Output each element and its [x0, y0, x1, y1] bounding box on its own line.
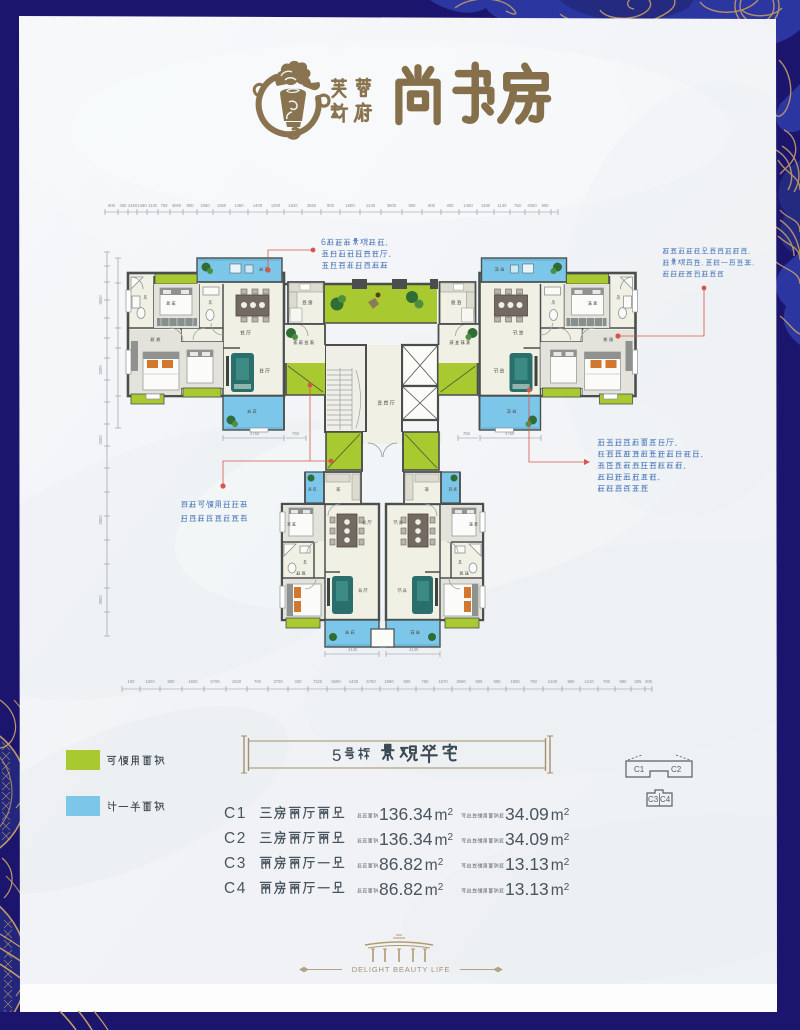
svg-text:4050: 4050 — [527, 203, 537, 208]
svg-text:900: 900 — [542, 203, 550, 208]
svg-text:86.82m2: 86.82m2 — [379, 854, 444, 874]
svg-text:3690: 3690 — [456, 679, 466, 684]
svg-text:1900: 1900 — [510, 679, 520, 684]
svg-text:900: 900 — [187, 203, 195, 208]
svg-text:805: 805 — [494, 679, 502, 684]
svg-text:1360: 1360 — [217, 203, 227, 208]
svg-text:C1: C1 — [224, 805, 247, 822]
svg-text:4130: 4130 — [348, 647, 358, 652]
svg-text:1300: 1300 — [271, 203, 281, 208]
svg-text:1430: 1430 — [349, 679, 359, 684]
svg-text:900: 900 — [404, 679, 412, 684]
svg-text:C1: C1 — [634, 765, 645, 774]
svg-text:7320: 7320 — [313, 679, 323, 684]
svg-text:1600: 1600 — [345, 203, 355, 208]
svg-text:1130: 1130 — [497, 203, 507, 208]
svg-text:136.34m2: 136.34m2 — [379, 829, 453, 849]
svg-text:4750: 4750 — [505, 431, 515, 436]
svg-text:2100: 2100 — [548, 679, 558, 684]
svg-text:136.34m2: 136.34m2 — [379, 804, 453, 824]
svg-text:100: 100 — [128, 679, 136, 684]
svg-text:C2: C2 — [671, 765, 682, 774]
svg-text:1570: 1570 — [438, 679, 448, 684]
svg-text:330: 330 — [295, 679, 303, 684]
svg-text:3600: 3600 — [98, 295, 103, 305]
svg-text:3700: 3700 — [273, 679, 283, 684]
svg-text:34.09m2: 34.09m2 — [505, 804, 570, 824]
svg-text:700: 700 — [603, 679, 611, 684]
svg-text:300: 300 — [645, 679, 653, 684]
svg-text:4130: 4130 — [409, 647, 419, 652]
svg-text:C3: C3 — [224, 855, 247, 872]
svg-text:DELIGHT BEAUTY LIFE: DELIGHT BEAUTY LIFE — [352, 965, 450, 974]
svg-text:400: 400 — [120, 203, 128, 208]
svg-text:4050: 4050 — [172, 203, 182, 208]
svg-text:400: 400 — [447, 203, 455, 208]
svg-text:905: 905 — [476, 679, 484, 684]
svg-text:13.13m2: 13.13m2 — [505, 879, 570, 899]
svg-text:1480: 1480 — [137, 203, 147, 208]
svg-text:86.82m2: 86.82m2 — [379, 879, 444, 899]
svg-text:1130: 1130 — [148, 203, 158, 208]
svg-text:1430: 1430 — [366, 203, 376, 208]
svg-text:4800: 4800 — [98, 515, 103, 525]
svg-text:750: 750 — [422, 679, 430, 684]
svg-text:5: 5 — [332, 746, 341, 765]
svg-text:900: 900 — [168, 679, 176, 684]
svg-text:1820: 1820 — [145, 679, 155, 684]
svg-text:760: 760 — [530, 679, 538, 684]
svg-text:5705: 5705 — [210, 679, 220, 684]
svg-text:700: 700 — [254, 679, 262, 684]
svg-text:1210: 1210 — [584, 679, 594, 684]
svg-text:C4: C4 — [660, 795, 671, 804]
svg-text:1620: 1620 — [288, 203, 298, 208]
svg-text:1400: 1400 — [253, 203, 263, 208]
svg-text:900: 900 — [327, 203, 335, 208]
svg-text:6: 6 — [321, 237, 326, 247]
svg-text:C4: C4 — [224, 880, 247, 897]
svg-text:750: 750 — [514, 203, 522, 208]
svg-text:1450: 1450 — [128, 203, 138, 208]
svg-text:1890: 1890 — [384, 679, 394, 684]
svg-text:3900: 3900 — [387, 203, 397, 208]
svg-text:600: 600 — [108, 203, 116, 208]
svg-text:505: 505 — [635, 679, 643, 684]
svg-text:1820: 1820 — [232, 679, 242, 684]
svg-text:1480: 1480 — [481, 203, 491, 208]
svg-text:2500: 2500 — [98, 435, 103, 445]
svg-text:1480: 1480 — [234, 203, 244, 208]
svg-text:C2: C2 — [224, 830, 247, 847]
svg-text:980: 980 — [568, 679, 576, 684]
svg-text:1450: 1450 — [463, 203, 473, 208]
svg-text:34.09m2: 34.09m2 — [505, 829, 570, 849]
svg-text:2560: 2560 — [307, 203, 317, 208]
svg-text:3300: 3300 — [98, 365, 103, 375]
svg-text:900: 900 — [409, 203, 417, 208]
svg-text:3900: 3900 — [98, 595, 103, 605]
svg-text:4750: 4750 — [250, 431, 260, 436]
svg-text:750: 750 — [161, 203, 169, 208]
svg-text:1060: 1060 — [200, 203, 210, 208]
svg-text:750: 750 — [463, 431, 471, 436]
svg-text:5590: 5590 — [331, 679, 341, 684]
svg-text:750: 750 — [292, 431, 300, 436]
svg-text:C3: C3 — [648, 795, 659, 804]
svg-text:890: 890 — [620, 679, 628, 684]
svg-text:5750: 5750 — [366, 679, 376, 684]
svg-text:13.13m2: 13.13m2 — [505, 854, 570, 874]
svg-text:600: 600 — [428, 203, 436, 208]
svg-text:1600: 1600 — [188, 679, 198, 684]
